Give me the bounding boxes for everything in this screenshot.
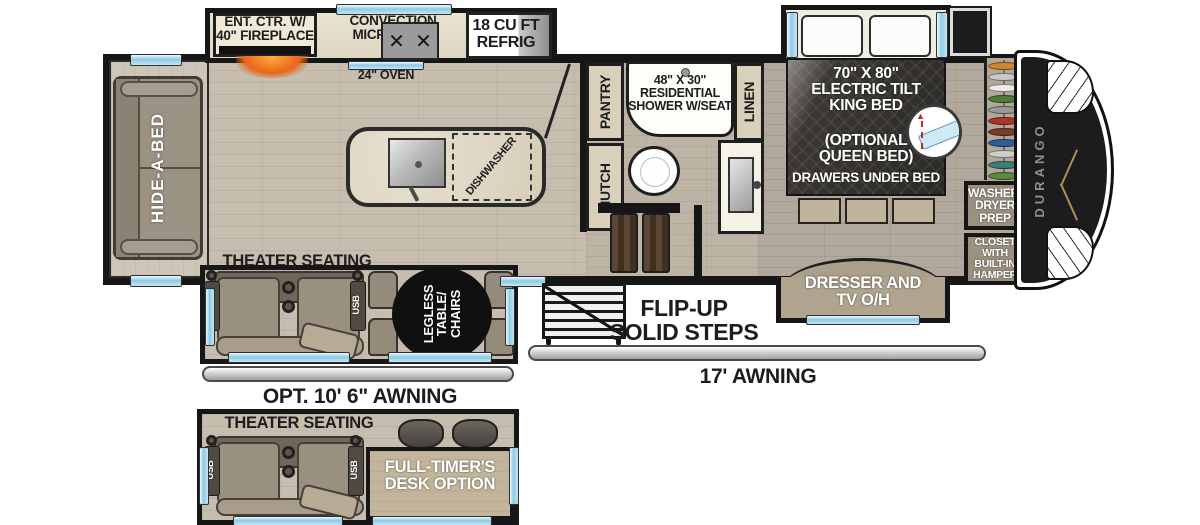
theater-window-bottom-right	[388, 352, 492, 363]
interior-step	[610, 213, 638, 273]
cupholder	[352, 270, 363, 281]
rv-floorplan: HIDE-A-BED ENT. CTR. W/ 40" FIREPLACE CO…	[0, 0, 1200, 525]
cupholder	[350, 435, 361, 446]
cupholder	[282, 465, 295, 478]
hide-a-bed-label: HIDE-A-BED	[148, 83, 168, 253]
steps-header-bar	[598, 203, 680, 213]
burner-icon: ✕	[415, 29, 432, 54]
pillow-right	[869, 15, 931, 57]
fireplace-glow	[236, 56, 308, 78]
option-window-right	[509, 447, 519, 505]
option-theater-label: THEATER SEATING	[224, 415, 374, 433]
burner-icon: ✕	[388, 29, 405, 54]
under-bed-drawer	[798, 198, 841, 224]
refrig-label: 18 CU FT REFRIG	[466, 16, 546, 54]
sink-drain	[415, 161, 422, 168]
option-window-bottom-left	[233, 516, 343, 525]
theater-window-bottom-left	[228, 352, 350, 363]
front-overhead-cabinet	[950, 8, 990, 56]
cupholder	[206, 435, 217, 446]
dinette-label: LEGLESS TABLE/ CHAIRS	[412, 268, 472, 360]
tilt-bed-icon: ▲	[906, 104, 962, 160]
cupholder	[282, 300, 295, 313]
tilt-bed-mattress	[918, 119, 962, 150]
island-sink	[388, 138, 446, 188]
theater-window-left	[205, 288, 215, 346]
awning-opt-10ft6	[202, 366, 514, 382]
cupholder	[206, 270, 217, 281]
dresser-window	[806, 315, 920, 325]
steps-side-wall	[694, 205, 702, 278]
oven-label: 24" OVEN	[346, 69, 426, 82]
cap-corner-top	[1046, 60, 1094, 114]
theater-seat-left	[217, 277, 280, 343]
bed-drawers-label: DRAWERS UNDER BED	[782, 170, 950, 186]
option-window-bottom-right	[372, 516, 492, 525]
under-bed-drawer	[845, 198, 888, 224]
tilt-bed-dashed-line	[921, 121, 923, 149]
linen-label: LINEN	[741, 64, 757, 140]
fireplace-label: ENT. CTR. W/ 40" FIREPLACE	[215, 14, 315, 44]
toilet-seat-line	[640, 157, 670, 187]
awning-opt-label: OPT. 10' 6" AWNING	[262, 386, 458, 408]
tilt-bed-arrow: ▲	[916, 111, 925, 121]
desk-stool	[452, 419, 498, 449]
rear-window-bottom	[130, 275, 182, 287]
option-seat-left	[217, 442, 280, 504]
vanity-faucet-icon	[753, 181, 761, 189]
theater-window-right	[505, 288, 515, 346]
vanity-sink	[728, 157, 754, 213]
usb-label-right: USB	[351, 283, 363, 327]
awning-17ft	[528, 345, 986, 361]
cupholder	[282, 281, 295, 294]
cap-corner-bottom	[1046, 226, 1094, 280]
bed-window-left	[786, 12, 798, 58]
fireplace-mantel	[219, 46, 311, 54]
toilet	[628, 146, 680, 196]
shower-label: 48" X 30" RESIDENTIAL SHOWER W/SEAT	[628, 72, 732, 114]
pillow-left	[801, 15, 863, 57]
desk-stool	[398, 419, 444, 449]
desk-label: FULL-TIMER'S DESK OPTION	[370, 456, 510, 496]
pantry-label: PANTRY	[597, 64, 613, 140]
dresser-label: DRESSER AND TV O/H	[786, 270, 940, 314]
brand-logo: DURANGO	[1032, 105, 1048, 235]
bed-window-right	[936, 12, 948, 58]
bath-vanity	[718, 140, 764, 234]
under-bed-drawer	[892, 198, 935, 224]
option-usb-right: USB	[349, 448, 361, 492]
entry-window	[500, 276, 546, 287]
rear-window-top	[130, 54, 182, 66]
flip-up-steps-label: FLIP-UP SOLID STEPS	[596, 297, 772, 345]
awning-17ft-label: 17' AWNING	[688, 366, 828, 388]
cooktop: ✕✕	[381, 22, 439, 60]
option-window-left	[199, 447, 209, 505]
interior-step	[642, 213, 670, 273]
cupholder	[282, 446, 295, 459]
sofa-back-cushion	[116, 79, 140, 257]
